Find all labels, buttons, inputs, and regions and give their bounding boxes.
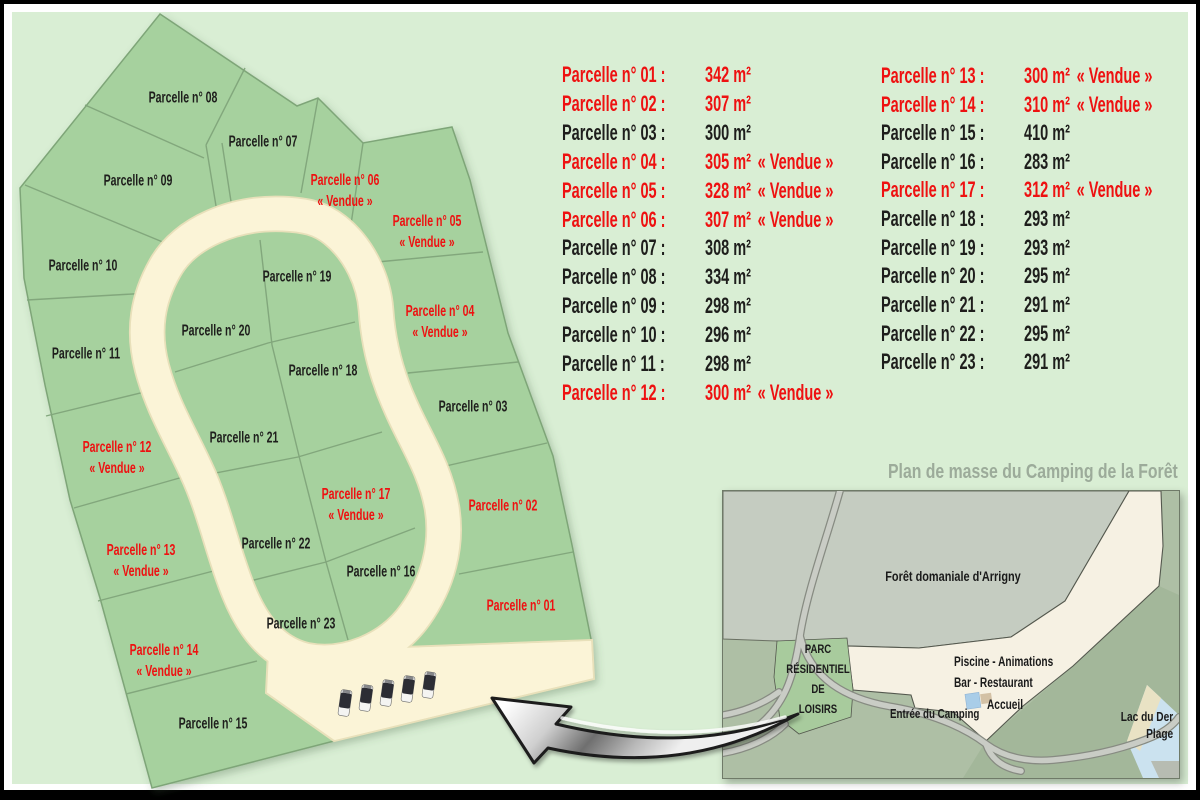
map-label-parcelle-23: Parcelle n° 23 xyxy=(249,614,353,635)
map-label-parcelle-08: Parcelle n° 08 xyxy=(131,88,235,109)
plan-page: { "colors": { "page_bg": "#d9eed4", "par… xyxy=(0,0,1200,800)
inset-label-parc-residentiel: PARC RÉSIDENTIEL DE LOISIRS xyxy=(778,639,857,719)
map-label-parcelle-11: Parcelle n° 11 xyxy=(34,344,137,365)
map-label-parcelle-22: Parcelle n° 22 xyxy=(224,534,328,555)
inset-map-title: Plan de masse du Camping de la Forêt xyxy=(700,461,1178,484)
map-label-parcelle-21: Parcelle n° 21 xyxy=(192,428,296,449)
map-label-parcelle-04: Parcelle n° 04« Vendue » xyxy=(388,301,492,343)
map-label-parcelle-19: Parcelle n° 19 xyxy=(245,267,349,288)
map-label-parcelle-13: Parcelle n° 13« Vendue » xyxy=(89,540,193,582)
inset-map: Forêt domaniale d'Arrigny PARC RÉSIDENTI… xyxy=(722,490,1180,779)
map-label-parcelle-01: Parcelle n° 01 xyxy=(469,596,573,617)
inset-label-forest: Forêt domaniale d'Arrigny xyxy=(866,568,1040,584)
map-label-parcelle-02: Parcelle n° 02 xyxy=(451,496,555,517)
map-label-parcelle-14: Parcelle n° 14« Vendue » xyxy=(112,640,216,682)
map-label-parcelle-17: Parcelle n° 17« Vendue » xyxy=(304,484,408,526)
map-label-parcelle-15: Parcelle n° 15 xyxy=(161,714,265,735)
inset-label-lac-du-der: Lac du Der Plage xyxy=(1106,708,1173,742)
map-label-parcelle-03: Parcelle n° 03 xyxy=(421,397,525,418)
map-label-parcelle-10: Parcelle n° 10 xyxy=(31,256,135,277)
inset-label-piscine-bar: Piscine - Animations Bar - Restaurant xyxy=(954,651,1086,693)
map-label-parcelle-09: Parcelle n° 09 xyxy=(86,171,190,192)
map-label-parcelle-05: Parcelle n° 05« Vendue » xyxy=(375,211,479,253)
map-label-parcelle-16: Parcelle n° 16 xyxy=(329,562,433,583)
map-label-parcelle-18: Parcelle n° 18 xyxy=(271,361,375,382)
map-label-parcelle-06: Parcelle n° 06« Vendue » xyxy=(293,170,397,212)
map-label-parcelle-20: Parcelle n° 20 xyxy=(164,321,268,342)
map-label-parcelle-07: Parcelle n° 07 xyxy=(211,132,315,153)
map-label-parcelle-12: Parcelle n° 12« Vendue » xyxy=(65,437,169,479)
inset-label-entree: Entrée du Camping xyxy=(890,706,1009,721)
